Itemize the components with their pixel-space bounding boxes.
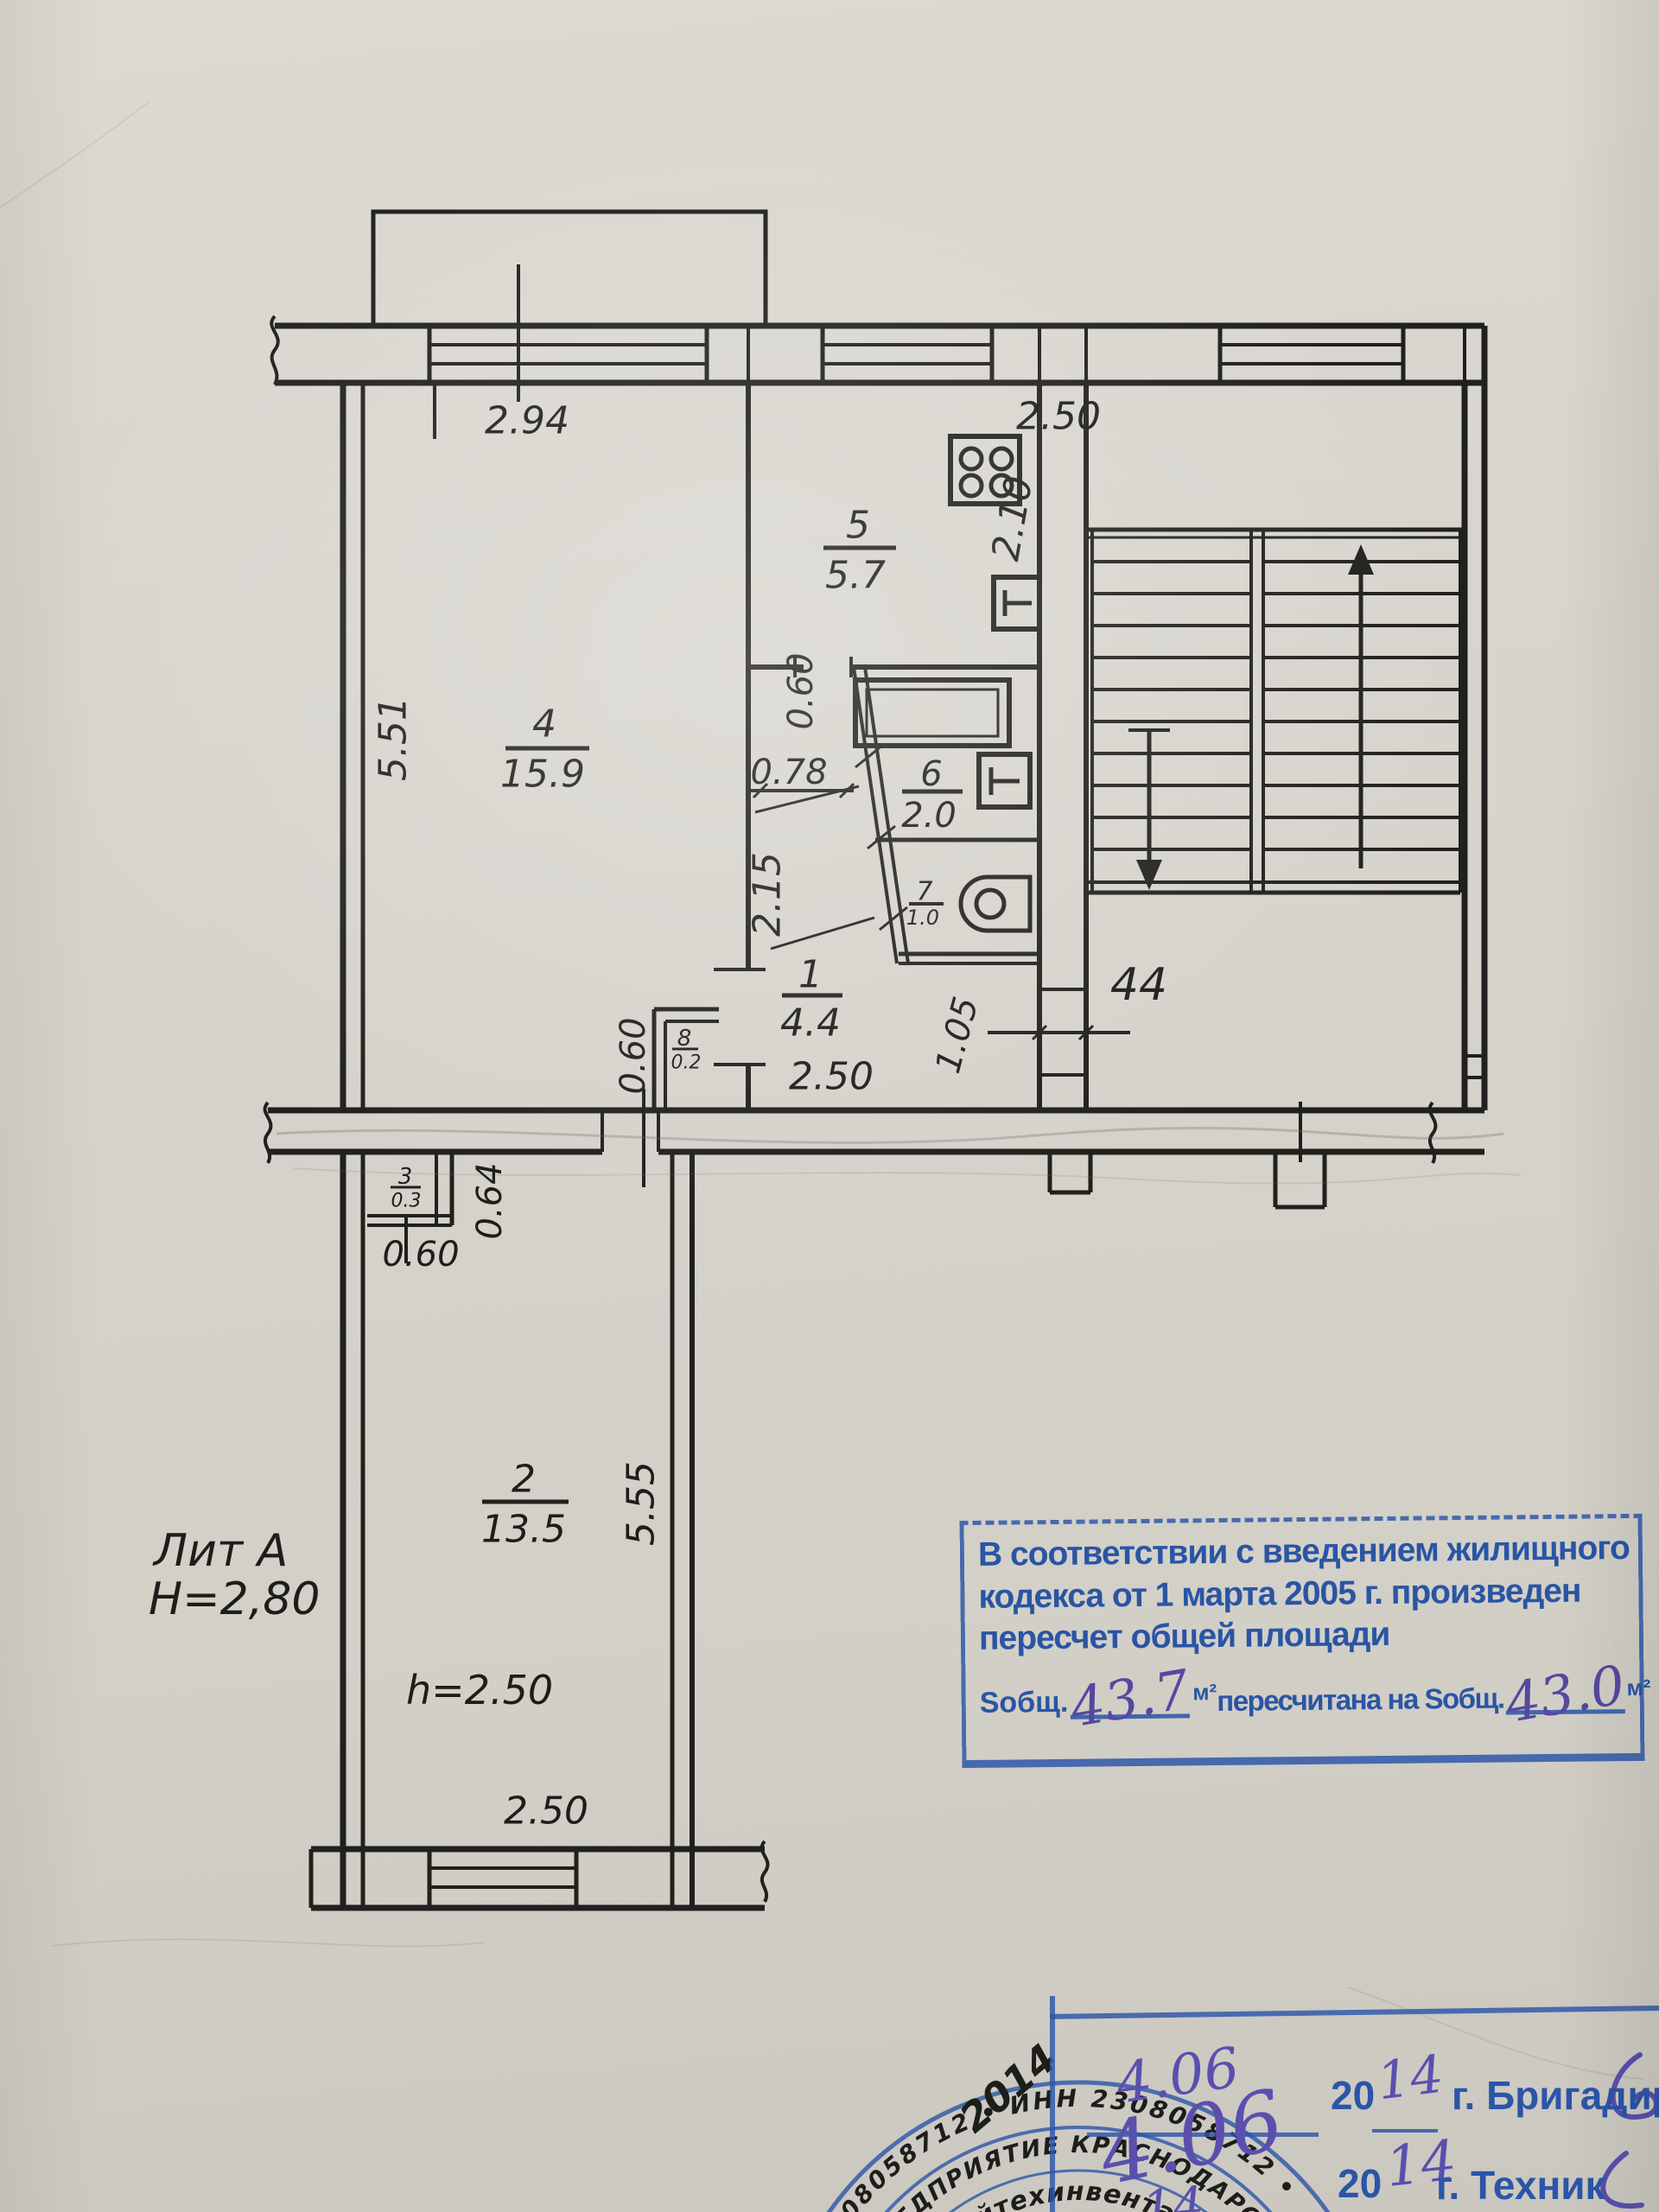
stamp-inner-ring-text: «Крайтехинвентаризация» [0,0,1255,2212]
row2-role-label: г. Техник [1436,2162,1605,2209]
new-area-units: м² [1626,1675,1650,1701]
recalc-line2: кодекса от 1 марта 2005 г. произведен [978,1570,1624,1618]
row1-year-prefix: 20 [1331,2072,1375,2119]
recalc-line3: пересчет общей площади [979,1611,1625,1659]
round-stamp-layer: ИНН 2308058712 • ИНН 2308058712 • УНИТАР… [0,0,1659,2212]
s-total-label: Sобщ. [980,1686,1069,1720]
old-area-units: м² [1192,1679,1217,1706]
svg-text:«Крайтехинвентаризация»: «Крайтехинвентаризация» [0,0,1255,2212]
new-area-value: 43.0 [1503,1662,1627,1725]
row1-year-handwritten: 14 [1374,2044,1446,2113]
extra-year-handwritten: 14 [1140,2177,1206,2212]
row2-year-prefix: 20 [1338,2160,1382,2207]
recalc-values-row: Sобщ.43.7м²пересчитана на Sобщ.43.0м² [979,1665,1626,1720]
recalc-line1: В соответствии с введением жилищного [978,1528,1624,1575]
row1-role-label: г. Бригадир [1452,2072,1659,2119]
new-area-field: 43.0 [1505,1665,1625,1714]
technik-signature [1603,2153,1642,2206]
old-area-field: 43.7 [1070,1669,1190,1719]
recalc-stamp: В соответствии с введением жилищного код… [960,1514,1645,1768]
round-stamp: ИНН 2308058712 • ИНН 2308058712 • УНИТАР… [0,0,1382,2212]
old-area-value: 43.7 [1067,1668,1192,1730]
recalc-middle-text: пересчитана на Sобщ. [1217,1681,1504,1717]
signature-box-left-border [1050,1996,1055,2212]
scanned-floor-plan-page: 2.94 2.50 5.51 2.10 0.60 0.78 2.15 0.60 … [0,0,1659,2212]
